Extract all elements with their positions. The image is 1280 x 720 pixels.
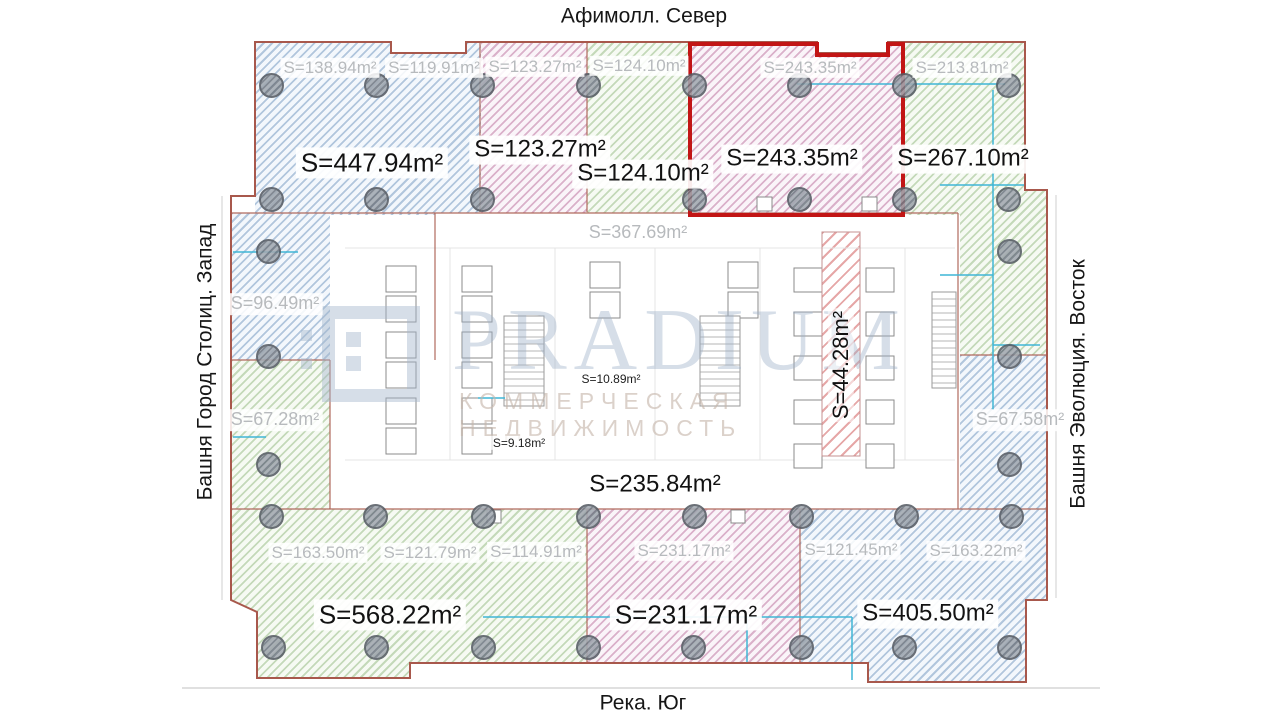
shaft-area-label[interactable]: S=44.28m²	[828, 308, 854, 422]
column	[681, 635, 706, 660]
unit-area-label[interactable]: S=447.94m²	[296, 147, 448, 178]
unit-area-label[interactable]: S=568.22m²	[314, 599, 466, 630]
column	[894, 504, 919, 529]
building-core	[330, 215, 960, 509]
column	[363, 504, 388, 529]
unit-area-label[interactable]: S=67.58m²	[973, 409, 1068, 431]
column	[259, 504, 284, 529]
column	[259, 187, 284, 212]
unit-area-label[interactable]: S=67.28m²	[228, 409, 323, 431]
floorplan-canvas: PRADIUM КОММЕРЧЕСКАЯ НЕДВИЖИМОСТЬ Афимол…	[0, 0, 1280, 720]
bay-area-label: S=163.50m²	[268, 543, 367, 563]
unit-area-label[interactable]: S=235.84m²	[584, 471, 725, 500]
column	[999, 504, 1024, 529]
column	[682, 187, 707, 212]
column	[997, 635, 1022, 660]
column	[256, 344, 281, 369]
unit-area-label[interactable]: S=231.17m²	[610, 599, 762, 630]
column	[364, 635, 389, 660]
column	[471, 635, 496, 660]
unit-area-label[interactable]: S=267.10m²	[892, 145, 1033, 174]
orientation-east: Башня Эволюция. Восток	[1065, 259, 1090, 509]
bay-area-label: S=138.94m²	[280, 58, 379, 78]
unit-region-67w[interactable]	[231, 360, 330, 509]
orientation-west: Башня Город Столиц. Запад	[192, 224, 217, 501]
column	[997, 452, 1022, 477]
column	[789, 635, 814, 660]
column	[997, 344, 1022, 369]
orientation-south: Река. Юг	[600, 690, 687, 715]
unit-area-label[interactable]: S=405.50m²	[857, 600, 998, 629]
bay-area-label: S=114.91m²	[487, 542, 585, 562]
core-area-label: S=9.18m²	[491, 436, 547, 450]
column	[892, 635, 917, 660]
column	[576, 635, 601, 660]
bay-area-label: S=213.81m²	[912, 58, 1011, 78]
bay-area-label: S=121.45m²	[801, 540, 900, 560]
unit-area-label selected-unit-label[interactable]: S=243.35m²	[721, 145, 862, 174]
column	[256, 239, 281, 264]
column	[682, 73, 707, 98]
unit-area-label[interactable]: S=96.49m²	[228, 293, 323, 315]
bay-area-label: S=231.17m²	[634, 541, 733, 561]
unit-area-label[interactable]: S=367.69m²	[586, 222, 691, 244]
column	[256, 452, 281, 477]
column	[364, 187, 389, 212]
unit-area-label[interactable]: S=124.10m²	[572, 160, 713, 189]
column	[470, 187, 495, 212]
core-area-label: S=10.89m²	[579, 372, 642, 386]
bay-area-label: S=243.35m²	[760, 58, 859, 78]
bay-area-label: S=163.22m²	[926, 541, 1025, 561]
column	[261, 635, 286, 660]
column	[996, 187, 1021, 212]
column	[471, 504, 496, 529]
column	[682, 504, 707, 529]
unit-region-67e[interactable]	[960, 355, 1047, 509]
orientation-north: Афимолл. Север	[561, 3, 727, 28]
bay-area-label: S=119.91m²	[385, 58, 483, 78]
column	[997, 239, 1022, 264]
bay-area-label: S=121.79m²	[380, 543, 479, 563]
bay-area-label: S=123.27m²	[485, 57, 584, 77]
column	[576, 504, 601, 529]
bay-area-label: S=124.10m²	[589, 56, 688, 76]
column	[892, 187, 917, 212]
column	[787, 187, 812, 212]
column	[789, 504, 814, 529]
